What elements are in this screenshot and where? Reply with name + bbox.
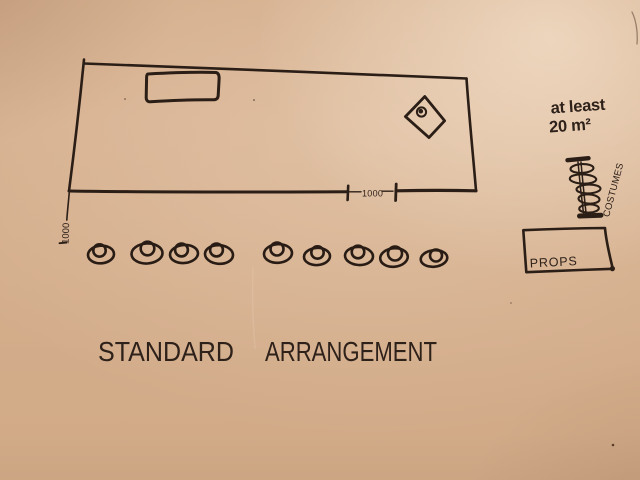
svg-text:20 m²: 20 m² bbox=[549, 116, 593, 137]
svg-text:PROPS: PROPS bbox=[529, 254, 577, 270]
svg-text:ARRANGEMENT: ARRANGEMENT bbox=[265, 336, 437, 367]
svg-text:1000: 1000 bbox=[362, 189, 383, 199]
svg-text:STANDARD: STANDARD bbox=[98, 336, 234, 367]
svg-text:COSTUMES: COSTUMES bbox=[601, 162, 626, 218]
svg-text:1000: 1000 bbox=[61, 223, 73, 245]
svg-text:at least: at least bbox=[550, 96, 606, 118]
